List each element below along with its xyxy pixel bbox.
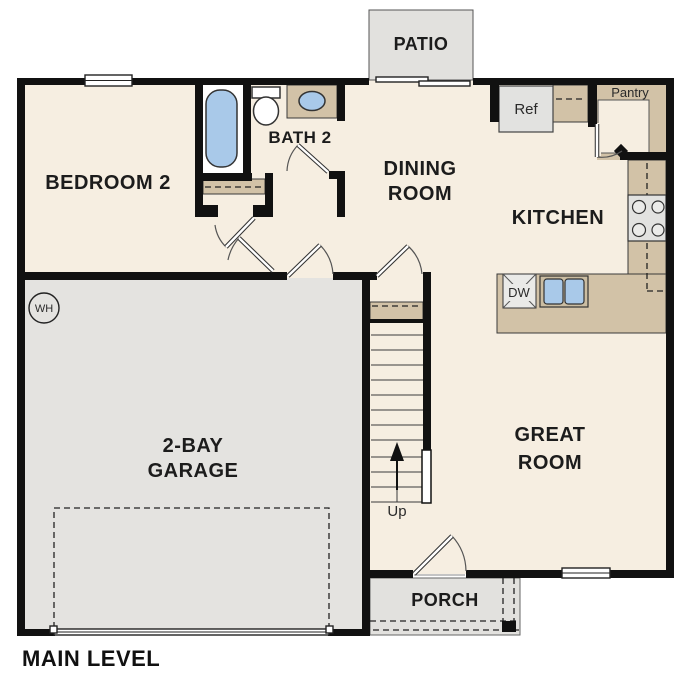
garage-label-line1: 2-BAY [163,435,224,457]
patio-label: PATIO [394,34,449,54]
kitchen-sink [540,276,588,307]
pantry-label: Pantry [611,85,649,100]
pantry-interior [598,100,649,153]
floor-plan: Ref DW [0,0,687,687]
bath2-label: BATH 2 [268,128,331,147]
stair-railing [422,450,431,503]
up-label: Up [387,503,406,520]
bath-sink [299,92,325,111]
great-room-label-line2: ROOM [518,452,582,474]
bedroom2-label: BEDROOM 2 [45,172,171,194]
burner [652,224,664,236]
refrigerator-label: Ref [514,101,538,118]
porch-post [502,621,516,632]
burner [633,201,646,214]
refrigerator: Ref [499,86,553,132]
garage-label-line2: GARAGE [148,460,239,482]
water-heater-label: WH [35,303,53,315]
bedroom-window [85,75,132,86]
great-room-window [562,568,610,578]
burner [652,201,664,213]
dining-label-line1: DINING [384,158,457,180]
kitchen-label: KITCHEN [512,207,604,229]
porch-label: PORCH [411,590,479,610]
stove [628,195,666,241]
stair-closet-shelf [370,302,423,320]
dishwasher-label: DW [508,285,530,300]
plan-title: MAIN LEVEL [22,646,160,671]
stair-landing-edge [370,319,423,323]
toilet [252,87,280,125]
dishwasher: DW [503,274,536,308]
great-room-label-line1: GREAT [514,424,585,446]
bathtub [206,90,237,167]
burner [633,224,646,237]
dining-label-line2: ROOM [388,183,452,205]
kitchen-counter-ref-side [553,85,588,122]
